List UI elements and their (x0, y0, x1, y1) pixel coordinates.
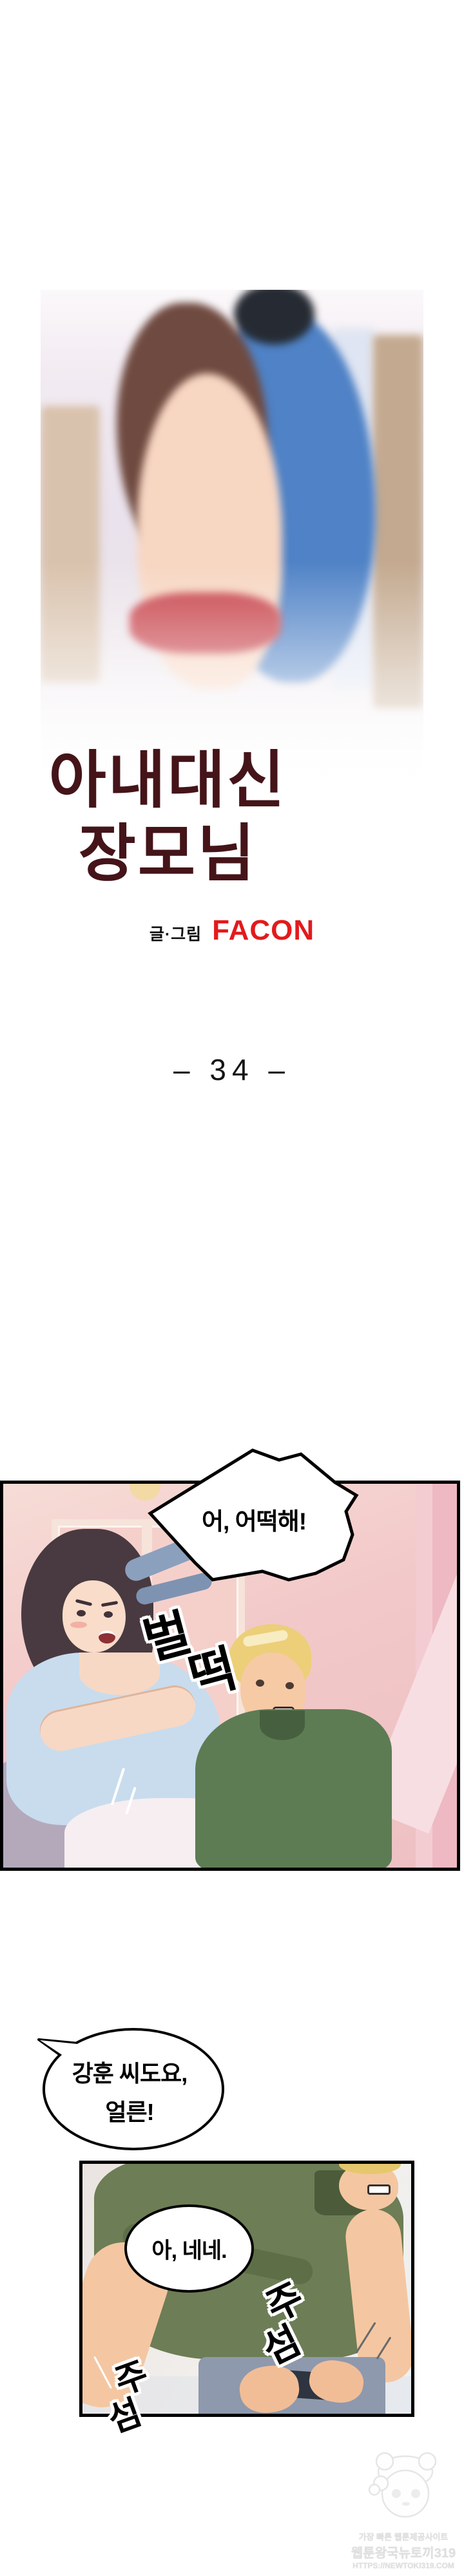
speech-bubble-ellipse-tail: 강훈 씨도요,얼른! (32, 2026, 227, 2152)
series-title-line1: 아내대신 (49, 746, 287, 815)
speech-bubble-text: 아, 네네. (151, 2233, 226, 2264)
credit-label: 글·그림 (150, 922, 202, 945)
woman-face (63, 1580, 126, 1653)
speech-bubble-line1: 강훈 씨도요, (72, 2060, 188, 2087)
series-title-line2: 장모님 (79, 820, 257, 889)
speech-bubble-line2: 얼른! (105, 2099, 153, 2125)
man-eye (285, 1682, 294, 1689)
woman-blush (70, 1622, 87, 1628)
speech-bubble-text: 강훈 씨도요,얼른! (32, 2054, 227, 2132)
speech-bubble-ellipse: 아, 네네. (124, 2204, 254, 2293)
chapter-number: – 34 – (0, 1052, 464, 1087)
webtoon-episode-page: 아내대신 장모님 글·그림 FACON – 34 – (0, 0, 464, 2576)
speech-bubble-text: 어, 어떡해! (146, 1502, 362, 1537)
credit-line: 글·그림 FACON (0, 914, 464, 947)
woman-eye (104, 1611, 113, 1618)
series-title: 아내대신 장모님 (0, 744, 335, 891)
watermark-tagline: 가장 빠른 웹툰제공사이트 (347, 2530, 460, 2543)
sfx-char: 섬 (104, 2394, 146, 2438)
cover-bottom-fade (41, 290, 423, 811)
site-watermark: 가장 빠른 웹툰제공사이트 웹툰왕국뉴토끼319 HTTPS://NEWTOKI… (347, 2450, 460, 2570)
man-gritted-teeth (367, 2184, 391, 2195)
credit-author-name: FACON (212, 914, 314, 947)
woman-eye (77, 1610, 86, 1616)
watermark-mascot-icon (355, 2450, 452, 2526)
speech-bubble-spiky: 어, 어떡해! (146, 1445, 362, 1584)
woman-open-mouth (99, 1631, 115, 1643)
watermark-url: HTTPS://NEWTOKI319.COM (347, 2561, 460, 2570)
cover-illustration (41, 290, 423, 811)
watermark-sitename: 웹툰왕국뉴토끼319 (347, 2543, 460, 2561)
sfx-char: 떡 (184, 1643, 242, 1703)
